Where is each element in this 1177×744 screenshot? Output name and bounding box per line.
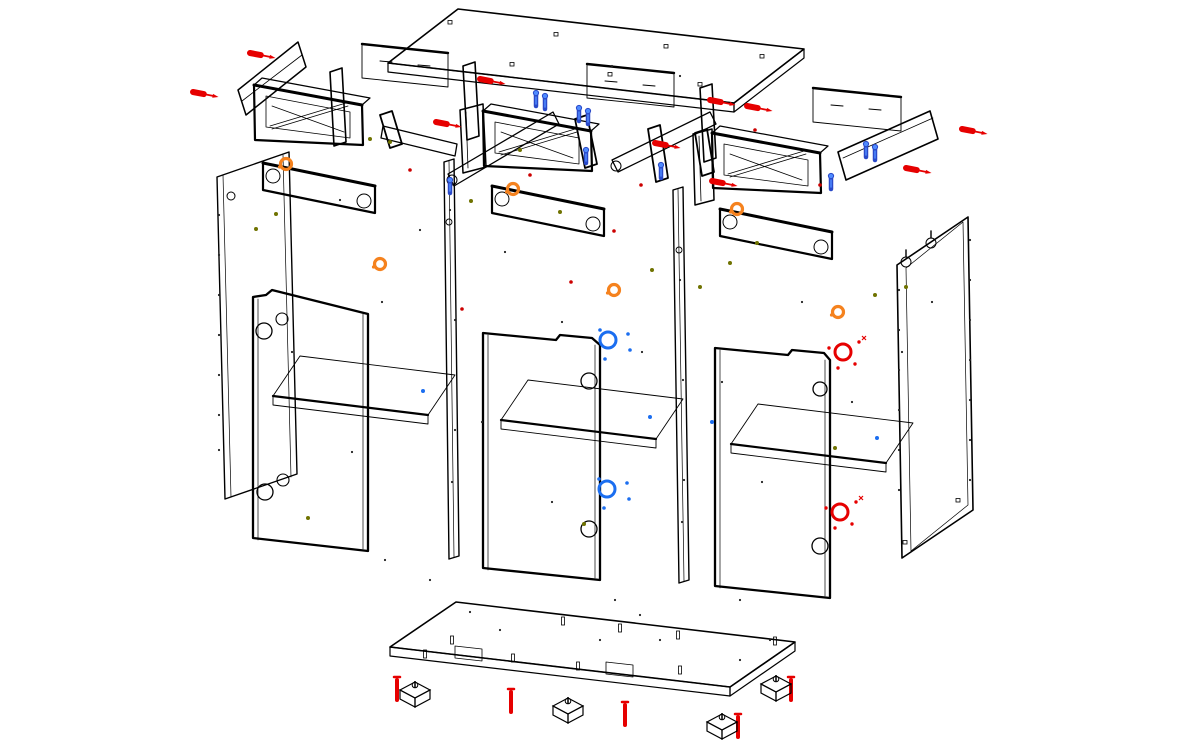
hole-dot-olive <box>254 227 258 231</box>
door-right-hinge-cup2 <box>812 538 828 554</box>
cam-lock-red <box>827 336 866 370</box>
hole-dot-black <box>339 199 341 201</box>
front-rail-right-hole <box>723 215 737 229</box>
drawer-runner-1 <box>381 126 457 156</box>
hole-dot-black <box>499 629 501 631</box>
hole-dot-black <box>682 379 684 381</box>
drawer-box-right-rail <box>728 151 804 174</box>
front-rail-center-hole <box>495 192 509 206</box>
screw-red <box>655 141 681 150</box>
drawer-box-center-rail <box>499 129 575 152</box>
hole-dot-black <box>679 75 681 77</box>
drawer-box-left-rail <box>270 103 346 126</box>
hole-dot-red <box>818 183 822 187</box>
hole-dot-black <box>739 659 741 661</box>
hole-dot-red <box>753 128 757 132</box>
hole-dot-black <box>218 334 220 336</box>
hole-dot-black <box>611 65 613 67</box>
hole-dot-black <box>218 449 220 451</box>
hole-dot-black <box>351 451 353 453</box>
front-rail-left-hole2 <box>357 194 371 208</box>
base-fitting-box <box>455 646 482 661</box>
hole-dot-black <box>561 321 563 323</box>
hole-dot-black <box>481 421 483 423</box>
hole-dot-black <box>761 481 763 483</box>
cam-lock-orange <box>729 204 743 215</box>
hole-dot-black <box>384 559 386 561</box>
hole-dot-black <box>898 289 900 291</box>
screw-red <box>712 179 738 188</box>
drawer-runner-3-end <box>611 161 621 171</box>
drawer-box-right-inner <box>724 144 808 186</box>
cam-lock-blue <box>598 328 632 361</box>
hole-dot-olive <box>873 293 877 297</box>
hole-dot-red <box>528 173 532 177</box>
back-post-3 <box>700 84 716 162</box>
hole-dot-red <box>460 307 464 311</box>
hole-dot-black <box>291 351 293 353</box>
hole-dot-olive <box>650 268 654 272</box>
hole-dot-black <box>454 429 456 431</box>
hole-dot-olive <box>518 148 522 152</box>
hole-dot-black <box>551 501 553 503</box>
drawer-box-left-inner <box>266 96 350 138</box>
assembly-diagram-page <box>0 0 1177 744</box>
base-panel-face <box>390 602 795 687</box>
foot <box>707 713 737 739</box>
hole-dot-black <box>898 449 900 451</box>
hole-dot-black <box>218 374 220 376</box>
dowel-peg <box>451 636 454 644</box>
hole-dot-black <box>683 479 685 481</box>
hole-dot-black <box>429 579 431 581</box>
drawer-box-right-topedge <box>712 133 820 153</box>
hole-dot-blue <box>421 389 425 393</box>
front-rail-left-hole <box>266 169 280 183</box>
hole-dot-black <box>801 301 803 303</box>
hole-dot-black <box>218 414 220 416</box>
back-panel-left-top <box>362 44 448 53</box>
hole-dot-black <box>969 279 971 281</box>
back-panel-right-top <box>813 88 901 97</box>
screw-red <box>193 90 219 99</box>
hole-dot-blue <box>648 415 652 419</box>
cam-lock-orange <box>606 285 620 296</box>
front-rail-center-hole2 <box>586 217 600 231</box>
hole-dot-olive <box>558 210 562 214</box>
hole-dot-black <box>901 351 903 353</box>
hole-dot-black <box>469 611 471 613</box>
hole-dot-olive <box>388 140 392 144</box>
left-side-panel <box>217 152 297 499</box>
dowel-peg <box>677 631 680 639</box>
hole-dot-olive <box>755 241 759 245</box>
hole-dot-black <box>969 239 971 241</box>
hole-dot-olive <box>274 212 278 216</box>
screw-red <box>962 127 988 136</box>
hole-mark <box>554 33 558 37</box>
dowel-peg <box>619 624 622 632</box>
foot <box>761 675 791 701</box>
drawer-side-right <box>838 111 938 180</box>
drawer-box-right-rail2 <box>730 154 806 177</box>
shelf-right-front <box>731 444 886 463</box>
hole-dot-black <box>639 614 641 616</box>
cam-bolt-pair <box>533 90 547 109</box>
hole-dot-black <box>454 319 456 321</box>
foot <box>553 697 583 723</box>
hole-mark <box>698 83 702 87</box>
drawer-side-right-line <box>843 118 933 158</box>
door-left-hinge-hole <box>276 313 288 325</box>
hole-dot-black <box>721 381 723 383</box>
shelf-right-band <box>731 444 886 472</box>
drawer-box-left-top <box>254 78 370 105</box>
drawer-box-right-rail3 <box>730 154 802 180</box>
screw-red <box>906 166 932 175</box>
hole-dot-red <box>639 183 643 187</box>
hole-dot-black <box>851 401 853 403</box>
back-panel-center-top <box>587 64 674 73</box>
shelf-left-front <box>273 396 428 415</box>
hole-dot-red <box>612 229 616 233</box>
cam-bolt <box>447 177 452 193</box>
screw-red-vertical <box>508 689 514 712</box>
hole-dot-black <box>449 209 451 211</box>
hole-dot-black <box>739 599 741 601</box>
hole-dot-blue <box>875 436 879 440</box>
back-panel-right-slot2 <box>869 109 881 110</box>
dowel-peg <box>562 617 565 625</box>
hole-dot-black <box>969 479 971 481</box>
hole-dot-black <box>969 439 971 441</box>
hole-dot-red <box>569 280 573 284</box>
cam-bolt <box>828 173 833 189</box>
hole-dot-black <box>659 639 661 641</box>
cam-bolt <box>658 162 663 178</box>
hole-dot-black <box>681 521 683 523</box>
hole-dot-black <box>218 214 220 216</box>
cam-lock-orange <box>830 307 844 318</box>
hole-mark <box>903 541 907 545</box>
hole-dot-olive <box>904 285 908 289</box>
cam-bolt-pair <box>863 141 877 160</box>
hole-dot-black <box>381 301 383 303</box>
base-panel-right-edge <box>730 642 795 696</box>
hole-dot-olive <box>469 199 473 203</box>
hole-dot-olive <box>582 522 586 526</box>
back-panel-right-slot <box>831 105 843 106</box>
screw-red <box>250 51 276 60</box>
top-panel-right-edge <box>734 49 804 112</box>
cam-lock-orange <box>372 259 386 270</box>
screw-red-vertical <box>622 702 628 725</box>
hole-dot-blue <box>710 420 714 424</box>
screw-red-vertical <box>394 677 400 700</box>
hole-dot-black <box>614 599 616 601</box>
hole-dot-black <box>679 279 681 281</box>
door-right <box>715 348 830 598</box>
hole-dot-black <box>969 399 971 401</box>
base-panel-front-edge <box>390 647 730 696</box>
right-side-panel-fitting2 <box>926 238 936 248</box>
screw-red-vertical <box>735 714 741 737</box>
door-middle <box>483 333 600 580</box>
hole-dot-black <box>898 409 900 411</box>
door-left-hinge-cup <box>256 323 272 339</box>
left-side-panel-fitting <box>227 192 235 200</box>
drawer-box-right-top <box>712 126 828 153</box>
hole-mark <box>956 499 960 503</box>
hole-dot-black <box>451 481 453 483</box>
hole-dot-olive <box>368 137 372 141</box>
shelf-center-band <box>501 420 656 448</box>
back-panel-center-slot <box>605 81 617 82</box>
hole-dot-olive <box>306 516 310 520</box>
hole-dot-olive <box>833 446 837 450</box>
hole-dot-black <box>218 294 220 296</box>
shelf-center-front <box>501 420 656 439</box>
hole-mark <box>448 21 452 25</box>
door-middle-hinge-cup <box>581 373 597 389</box>
hole-dot-black <box>898 329 900 331</box>
hole-dot-olive <box>698 285 702 289</box>
hole-dot-olive <box>728 261 732 265</box>
back-panel-left-slot2 <box>418 65 430 66</box>
partition-left-fitting <box>446 219 452 225</box>
hole-dot-black <box>419 229 421 231</box>
door-left-hinge-cup2 <box>257 484 273 500</box>
hole-dot-black <box>218 254 220 256</box>
back-panel-center-slot2 <box>643 85 655 86</box>
hole-mark <box>664 45 668 49</box>
hole-dot-black <box>969 359 971 361</box>
hole-dot-black <box>504 251 506 253</box>
hole-mark <box>510 63 514 67</box>
hole-dot-black <box>969 319 971 321</box>
foot <box>400 681 430 707</box>
hole-dot-red <box>408 168 412 172</box>
cam-lock-blue <box>597 477 631 510</box>
hole-mark <box>760 55 764 59</box>
drawer-box-left-rail2 <box>272 106 348 129</box>
screw-red <box>747 104 773 113</box>
hole-dot-black <box>599 639 601 641</box>
hole-dot-black <box>898 369 900 371</box>
screw-red <box>436 120 462 129</box>
top-panel-front-edge <box>388 63 734 112</box>
hole-dot-black <box>769 639 771 641</box>
assembly-diagram-svg <box>0 0 1177 744</box>
hole-dot-black <box>931 301 933 303</box>
door-left <box>253 290 368 551</box>
hole-dot-black <box>898 489 900 491</box>
hole-mark <box>608 73 612 77</box>
dowel-peg <box>679 666 682 674</box>
front-rail-right-hole2 <box>814 240 828 254</box>
dowel-peg <box>774 637 777 645</box>
cam-bolt <box>583 147 588 163</box>
top-panel-face <box>388 9 804 103</box>
drawer-box-center-inner <box>495 122 579 164</box>
hole-dot-black <box>641 351 643 353</box>
